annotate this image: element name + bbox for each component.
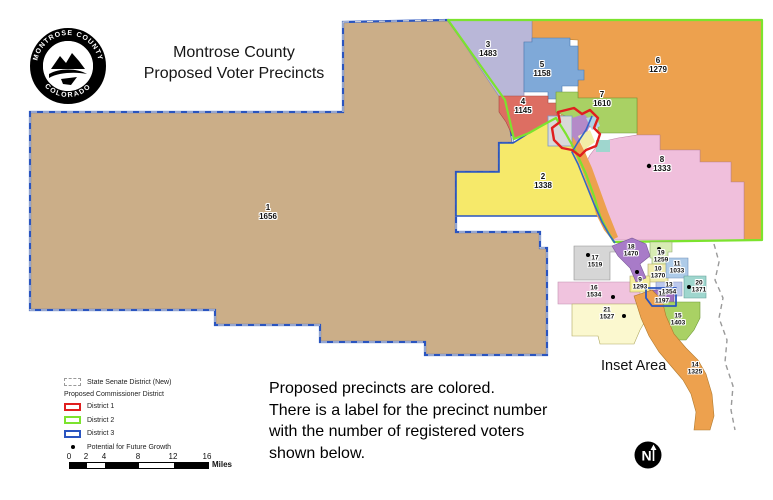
precinct-label-1: 11656 [259, 204, 277, 222]
note-line-1: Proposed precincts are colored. [269, 378, 547, 400]
precinct-label-18: 181470 [624, 244, 638, 259]
map-title-line1: Montrose County [100, 42, 368, 63]
senate-district-label: State Senate District (New) [87, 379, 171, 386]
district1-swatch [64, 403, 81, 411]
district2-label: District 2 [87, 417, 114, 424]
note-line-4: shown below. [269, 443, 547, 465]
legend-senate-row: State Senate District (New) [64, 377, 171, 387]
precinct-label-19: 191259 [654, 250, 668, 265]
precinct-label-14: 141325 [688, 362, 702, 377]
precinct-label-5: 51158 [533, 61, 550, 79]
growth-dot [611, 295, 615, 299]
inset-senate-dash-line [714, 244, 735, 430]
map-note: Proposed precincts are colored. There is… [269, 378, 547, 464]
scale-tick: 16 [203, 452, 212, 461]
scale-tick: 8 [136, 452, 140, 461]
legend-commissioner-header: Proposed Commissioner District [64, 391, 171, 398]
scale-tick: 2 [84, 452, 88, 461]
district2-swatch [64, 416, 81, 424]
precinct-label-10: 101370 [651, 266, 665, 281]
precinct-label-2: 21338 [534, 173, 552, 191]
north-arrow-letter: N [641, 448, 651, 464]
precinct-label-17: 171519 [588, 255, 602, 270]
map-title: Montrose County Proposed Voter Precincts [100, 42, 368, 84]
senate-district-swatch [64, 378, 81, 386]
precinct-label-15: 151403 [671, 313, 685, 328]
district3-label: District 3 [87, 430, 114, 437]
precinct-label-8: 81333 [653, 156, 671, 174]
north-arrow: N [633, 440, 663, 470]
district1-label: District 1 [87, 403, 114, 410]
legend-district1-row: District 1 [64, 402, 171, 412]
growth-dot [647, 164, 651, 168]
precinct-label-3: 31483 [479, 41, 497, 59]
map-canvas: MONTROSE COUNTY COLORADO Montrose County… [0, 0, 773, 500]
precinct-label-11: 111033 [670, 261, 684, 276]
map-title-line2: Proposed Voter Precincts [100, 63, 368, 84]
precinct-label-6: 61279 [649, 57, 667, 75]
precinct-label-20: 201371 [692, 280, 706, 295]
precinct-label-13: 131354 [662, 282, 676, 297]
growth-label: Potential for Future Growth [87, 444, 171, 451]
note-line-3: with the number of registered voters [269, 421, 547, 443]
precinct-label-7: 71610 [593, 91, 611, 109]
legend-district2-row: District 2 [64, 415, 171, 425]
precinct-label-9: 91293 [633, 277, 647, 292]
county-seal-logo: MONTROSE COUNTY COLORADO [29, 27, 107, 105]
scale-bar: 0 2 4 8 12 16 Miles [64, 452, 234, 474]
scale-unit-label: Miles [212, 460, 232, 469]
growth-dot-icon [71, 445, 75, 449]
legend-district3-row: District 3 [64, 429, 171, 439]
growth-dot [635, 270, 639, 274]
scale-tick: 12 [169, 452, 178, 461]
scale-bar-segments [69, 462, 209, 469]
inset-area-label: Inset Area [601, 358, 666, 374]
growth-dot [622, 314, 626, 318]
scale-tick: 0 [67, 452, 71, 461]
legend-growth-row: Potential for Future Growth [64, 442, 171, 452]
scale-tick: 4 [102, 452, 106, 461]
growth-dot [687, 285, 691, 289]
precinct-label-16: 161534 [587, 285, 601, 300]
legend: State Senate District (New) Proposed Com… [64, 377, 171, 456]
precinct-label-21: 211527 [600, 307, 614, 322]
precinct-label-4: 41145 [514, 98, 531, 116]
district3-swatch [64, 430, 81, 438]
note-line-2: There is a label for the precinct number [269, 400, 547, 422]
